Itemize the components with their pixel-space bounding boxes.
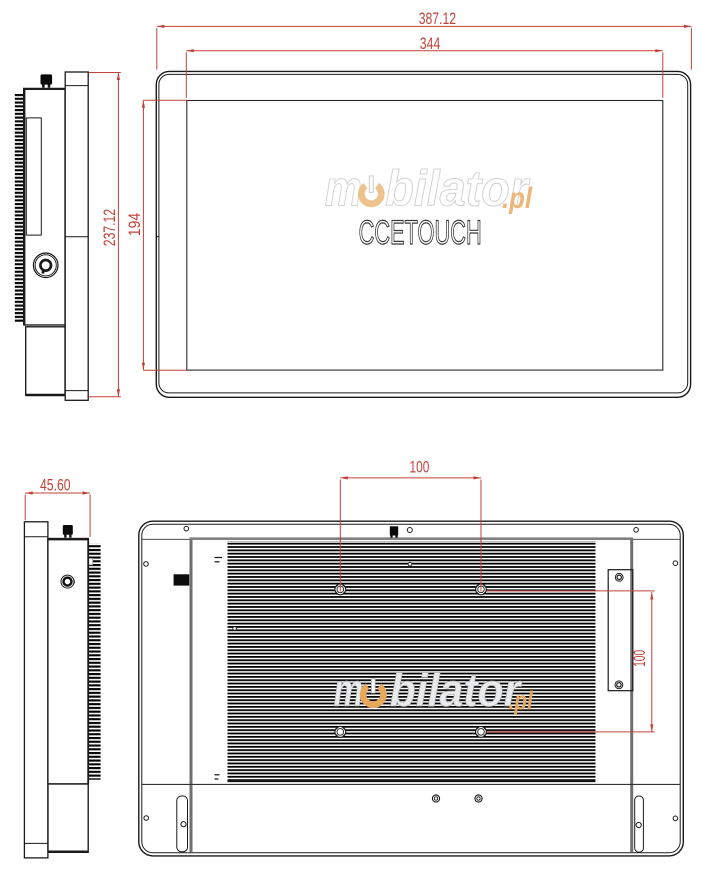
svg-text:CCETOUCH: CCETOUCH [359,214,482,252]
svg-text:m: m [325,160,362,216]
svg-text:45.60: 45.60 [40,477,71,495]
svg-text:100: 100 [631,650,649,667]
svg-text:bilator: bilator [390,665,523,716]
svg-text:m: m [334,666,363,716]
svg-text:194: 194 [126,212,144,236]
svg-text:237.12: 237.12 [101,209,119,246]
svg-text:344: 344 [420,35,440,53]
svg-text:.pl: .pl [502,181,533,214]
svg-text:387.12: 387.12 [419,11,456,29]
svg-text:.pl: .pl [509,686,534,715]
svg-text:100: 100 [410,459,430,477]
